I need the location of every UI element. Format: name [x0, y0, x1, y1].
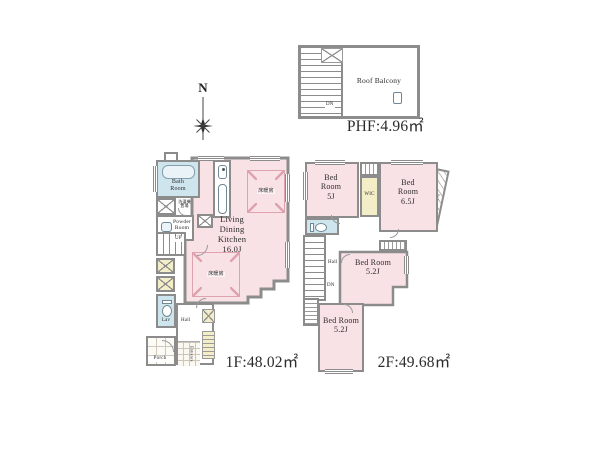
bedroom-label: Bed Room 5.2J	[351, 258, 395, 277]
hall-entrance-block: Hall Entrance	[176, 303, 214, 365]
room-name: Bed Room	[351, 258, 395, 267]
phf-area-label: PHF:4.96㎡	[334, 118, 424, 136]
bedroom-5-2j-bottom	[318, 303, 364, 372]
roof-hatch-icon	[393, 92, 402, 104]
room-size: 5J	[317, 192, 345, 201]
floor-heating-area: 床暖房	[247, 170, 285, 213]
pantry-closet	[197, 214, 213, 228]
stairs-2f	[303, 235, 326, 301]
bedroom-label: Bed Room 6.5J	[393, 178, 423, 206]
floor-2f-plan: Balcony Bed Room 5J WIC Bed Room 6.5J Ha…	[303, 158, 457, 374]
floor-1f-plan: Bath Room 洗濯機置場 Powder Room 床暖房 床暖房 Livi…	[140, 150, 292, 376]
closet-2f	[379, 240, 407, 251]
toilet-icon	[315, 223, 327, 232]
room-size: 6.5J	[393, 197, 423, 206]
closet-1f	[156, 258, 175, 274]
washer-space	[156, 198, 176, 215]
closet-1f	[156, 276, 175, 292]
faucet-icon	[222, 168, 225, 171]
window	[315, 160, 345, 165]
washer-label: 洗濯機置場	[177, 200, 192, 209]
toilet-tank-icon	[162, 300, 172, 304]
window	[198, 156, 224, 161]
stairs-up-label: UP	[174, 236, 183, 242]
roof-balcony-label: Roof Balcony	[341, 77, 417, 86]
2f-area-label: 2F:49.68㎡	[364, 354, 464, 372]
powder-room-label: Powder Room	[170, 219, 194, 232]
bedroom-label: Bed Room 5J	[317, 173, 345, 201]
window	[153, 166, 158, 192]
wic-label: WIC	[360, 192, 379, 198]
floor-heating-area: 床暖房	[192, 252, 240, 297]
counter-basin-icon	[218, 184, 227, 214]
lav-label: Lav	[158, 318, 174, 324]
window	[285, 242, 290, 268]
floorplan-canvas: N DN Roof Balcony PHF:4.96㎡ Bath Room 洗濯	[0, 0, 600, 450]
floor-heating-label: 床暖房	[257, 189, 275, 195]
toilet-tank-icon	[310, 223, 314, 232]
room-name: Bed Room	[321, 316, 361, 325]
compass: N	[188, 80, 218, 142]
window	[303, 172, 308, 200]
kitchen-sink-icon	[218, 165, 227, 179]
room-name: Living Dining Kitchen	[212, 214, 252, 244]
bathtub-icon	[162, 165, 195, 179]
closet-2f	[360, 162, 379, 176]
closet-2f	[303, 298, 319, 326]
room-size: 5.2J	[321, 325, 361, 334]
window	[325, 369, 353, 374]
bedroom-label: Bed Room 5.2J	[321, 316, 361, 335]
stairs-dn-label: DN	[326, 283, 336, 289]
phf-stairs-label: DN	[325, 102, 335, 108]
bath-room-label: Bath Room	[166, 179, 190, 193]
entrance-label: Entrance	[189, 342, 193, 365]
compass-north-label: N	[188, 80, 218, 96]
phf-storage-closet	[321, 48, 343, 63]
shoe-cabinet	[202, 309, 215, 323]
room-name: Bed Room	[393, 178, 423, 197]
1f-area-label: 1F:48.02㎡	[214, 354, 310, 372]
porch-label: Porch	[148, 356, 172, 362]
window	[250, 156, 280, 161]
room-size: 5.2J	[351, 267, 395, 276]
ldk-label: Living Dining Kitchen 16.0J	[212, 214, 252, 254]
hall-label-2f: Hall	[328, 260, 337, 266]
compass-icon	[190, 96, 216, 142]
room-name: Bed Room	[317, 173, 345, 192]
window	[285, 174, 290, 202]
window	[391, 160, 423, 165]
window	[404, 256, 409, 274]
toilet-icon	[162, 305, 172, 317]
floor-heating-label: 床暖房	[207, 272, 225, 278]
phf-plan: DN Roof Balcony	[298, 45, 420, 119]
hall-label: Hall	[181, 318, 190, 324]
room-size: 16.0J	[212, 244, 252, 254]
kitchen-counter	[213, 160, 231, 218]
